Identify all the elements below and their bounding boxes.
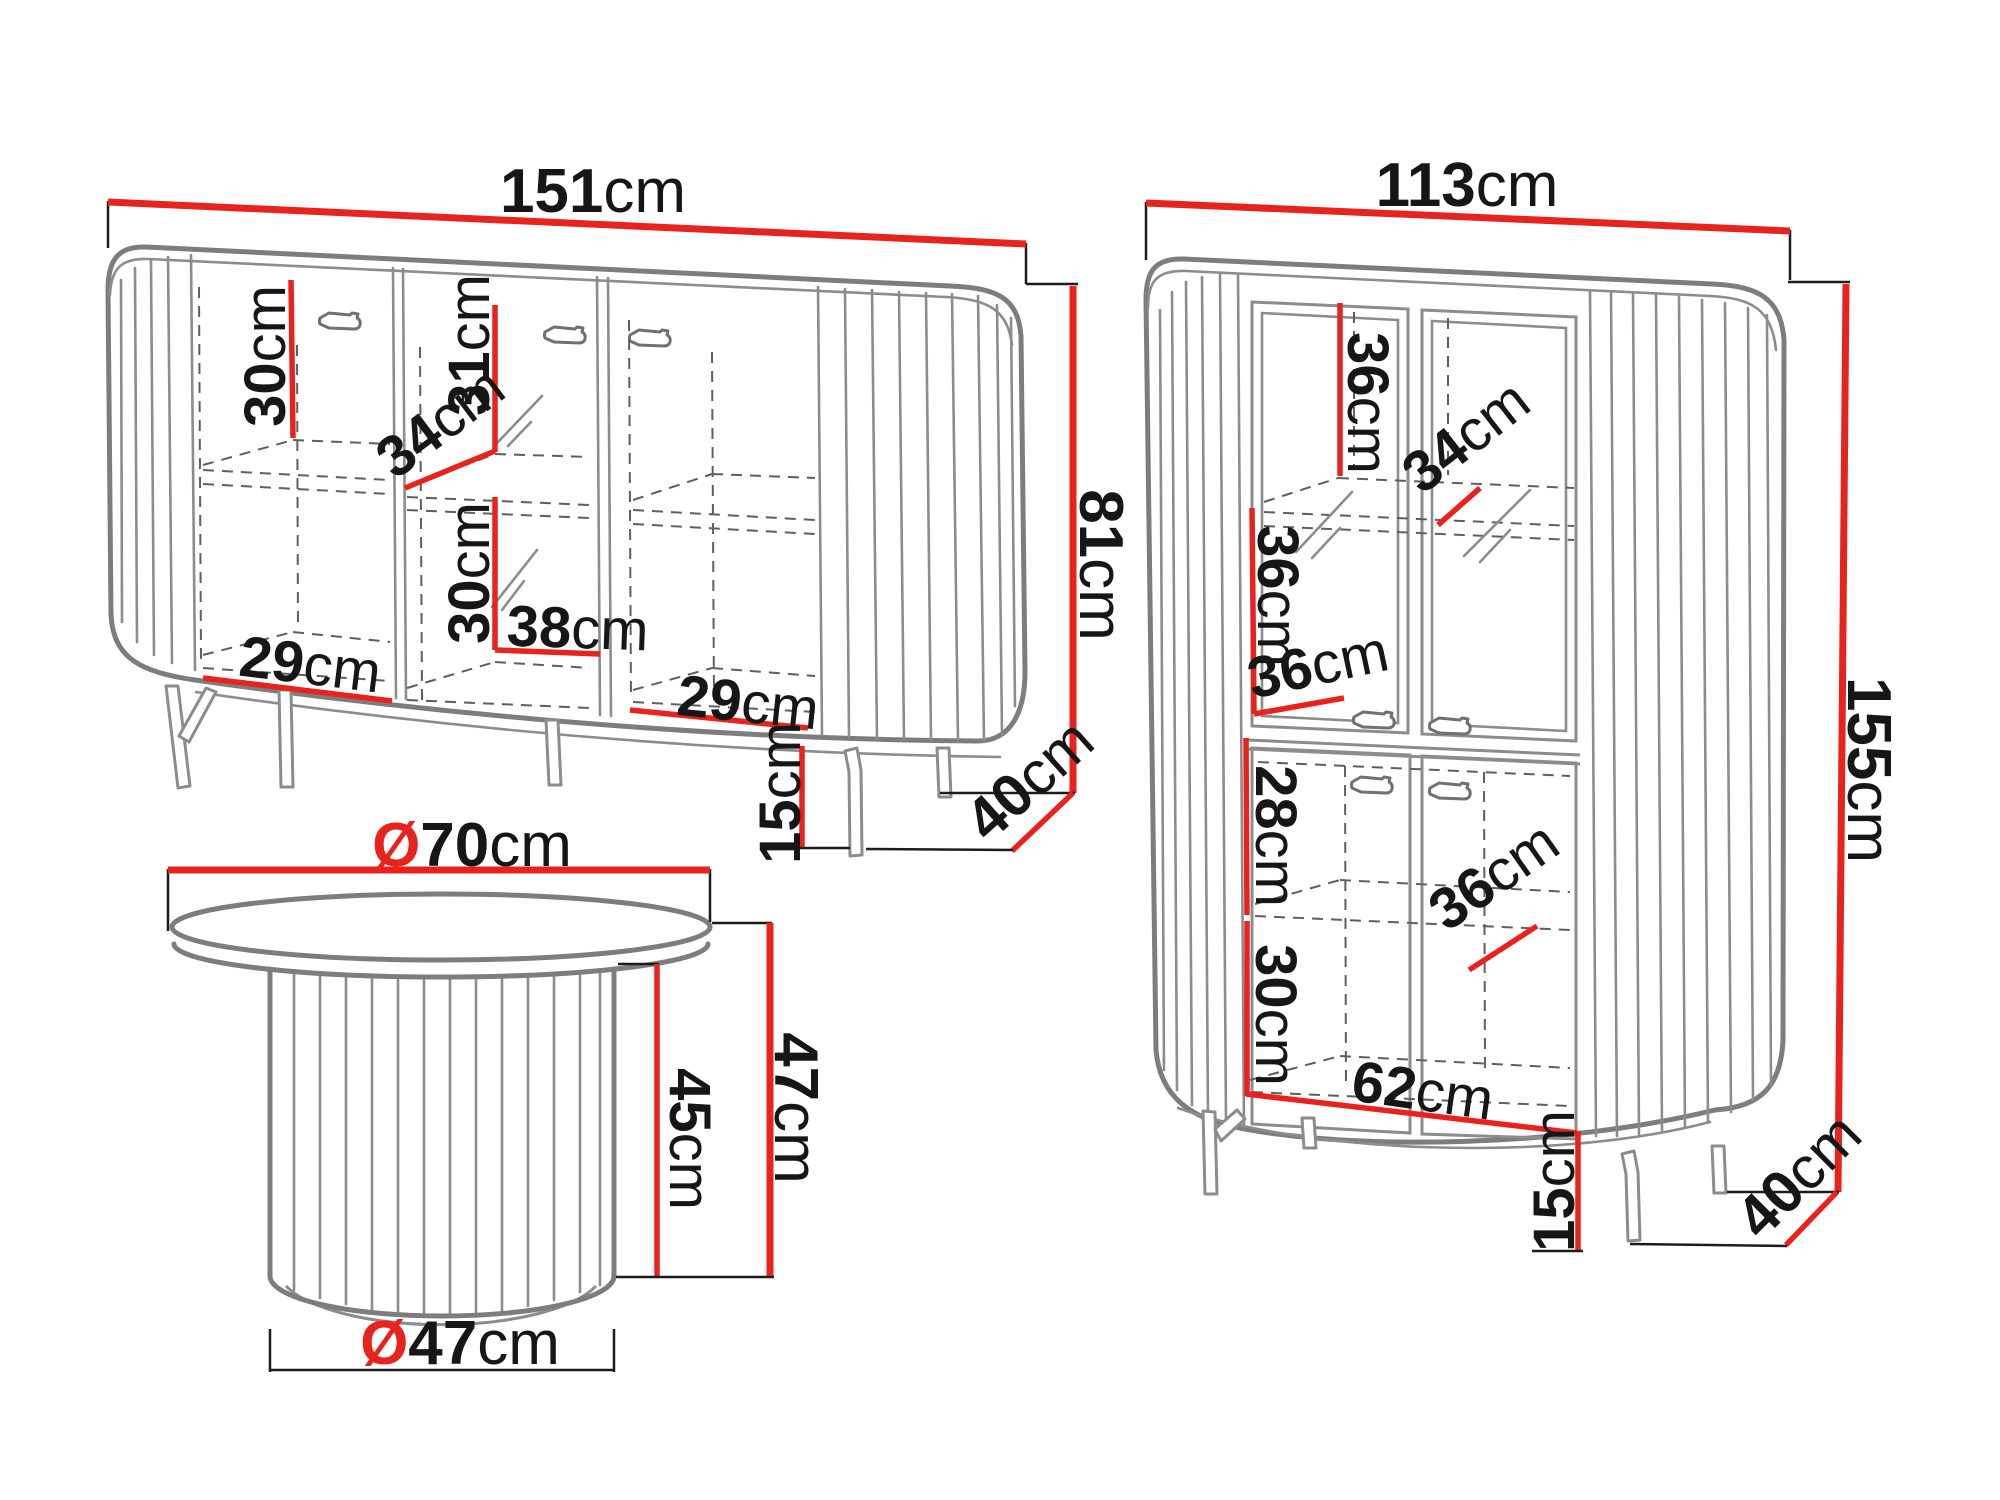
svg-text:15cm: 15cm [748,722,813,864]
svg-text:38cm: 38cm [506,594,650,664]
svg-text:45cm: 45cm [657,1068,722,1210]
svg-text:30cm: 30cm [437,502,502,644]
svg-text:28cm: 28cm [1243,765,1308,907]
svg-text:47cm: 47cm [761,1032,830,1184]
svg-text:15cm: 15cm [1522,1110,1587,1252]
svg-text:30cm: 30cm [1243,944,1308,1086]
svg-text:151cm: 151cm [500,157,686,226]
svg-text:36cm: 36cm [1335,332,1400,474]
svg-text:30cm: 30cm [233,285,298,427]
svg-text:155cm: 155cm [1834,677,1903,863]
svg-text:113cm: 113cm [1376,151,1559,220]
svg-text:81cm: 81cm [1066,489,1135,641]
svg-text:Ø47cm: Ø47cm [360,1309,560,1378]
svg-text:Ø70cm: Ø70cm [372,811,572,880]
